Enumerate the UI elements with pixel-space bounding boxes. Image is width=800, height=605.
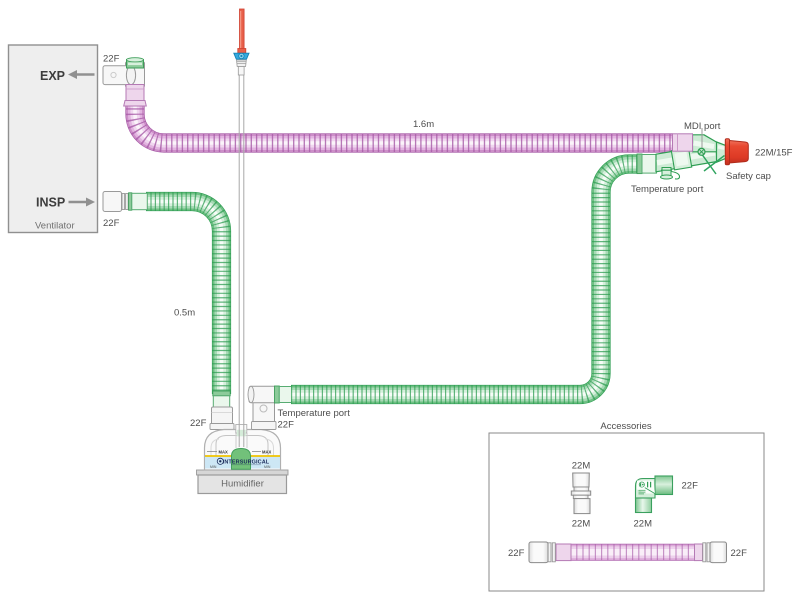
- svg-text:0.5m: 0.5m: [174, 308, 195, 319]
- svg-text:22M: 22M: [572, 519, 591, 530]
- svg-text:MDI port: MDI port: [684, 121, 721, 132]
- svg-text:1.6m: 1.6m: [413, 119, 434, 130]
- svg-text:Temperature port: Temperature port: [278, 408, 351, 419]
- svg-text:22M: 22M: [634, 519, 653, 530]
- svg-text:MIN: MIN: [264, 465, 271, 469]
- svg-text:Safety cap: Safety cap: [726, 171, 771, 182]
- svg-text:22F: 22F: [508, 548, 525, 559]
- svg-text:INSP: INSP: [36, 196, 65, 210]
- svg-text:MAX: MAX: [219, 450, 229, 455]
- svg-text:22F: 22F: [278, 420, 295, 431]
- svg-text:MAX: MAX: [262, 450, 272, 455]
- svg-text:22M/15F: 22M/15F: [755, 148, 793, 159]
- svg-text:22F: 22F: [190, 418, 207, 429]
- svg-text:Humidifier: Humidifier: [221, 479, 264, 490]
- svg-text:22F: 22F: [103, 218, 120, 229]
- svg-text:Ventilator: Ventilator: [35, 221, 75, 232]
- svg-text:22F: 22F: [103, 54, 120, 65]
- svg-text:Accessories: Accessories: [600, 421, 651, 432]
- svg-text:22F: 22F: [682, 481, 699, 492]
- svg-text:Temperature port: Temperature port: [631, 184, 704, 195]
- svg-text:EXP: EXP: [40, 69, 65, 83]
- svg-text:22M: 22M: [572, 461, 591, 472]
- svg-text:MIN: MIN: [210, 465, 217, 469]
- svg-text:22F: 22F: [731, 548, 748, 559]
